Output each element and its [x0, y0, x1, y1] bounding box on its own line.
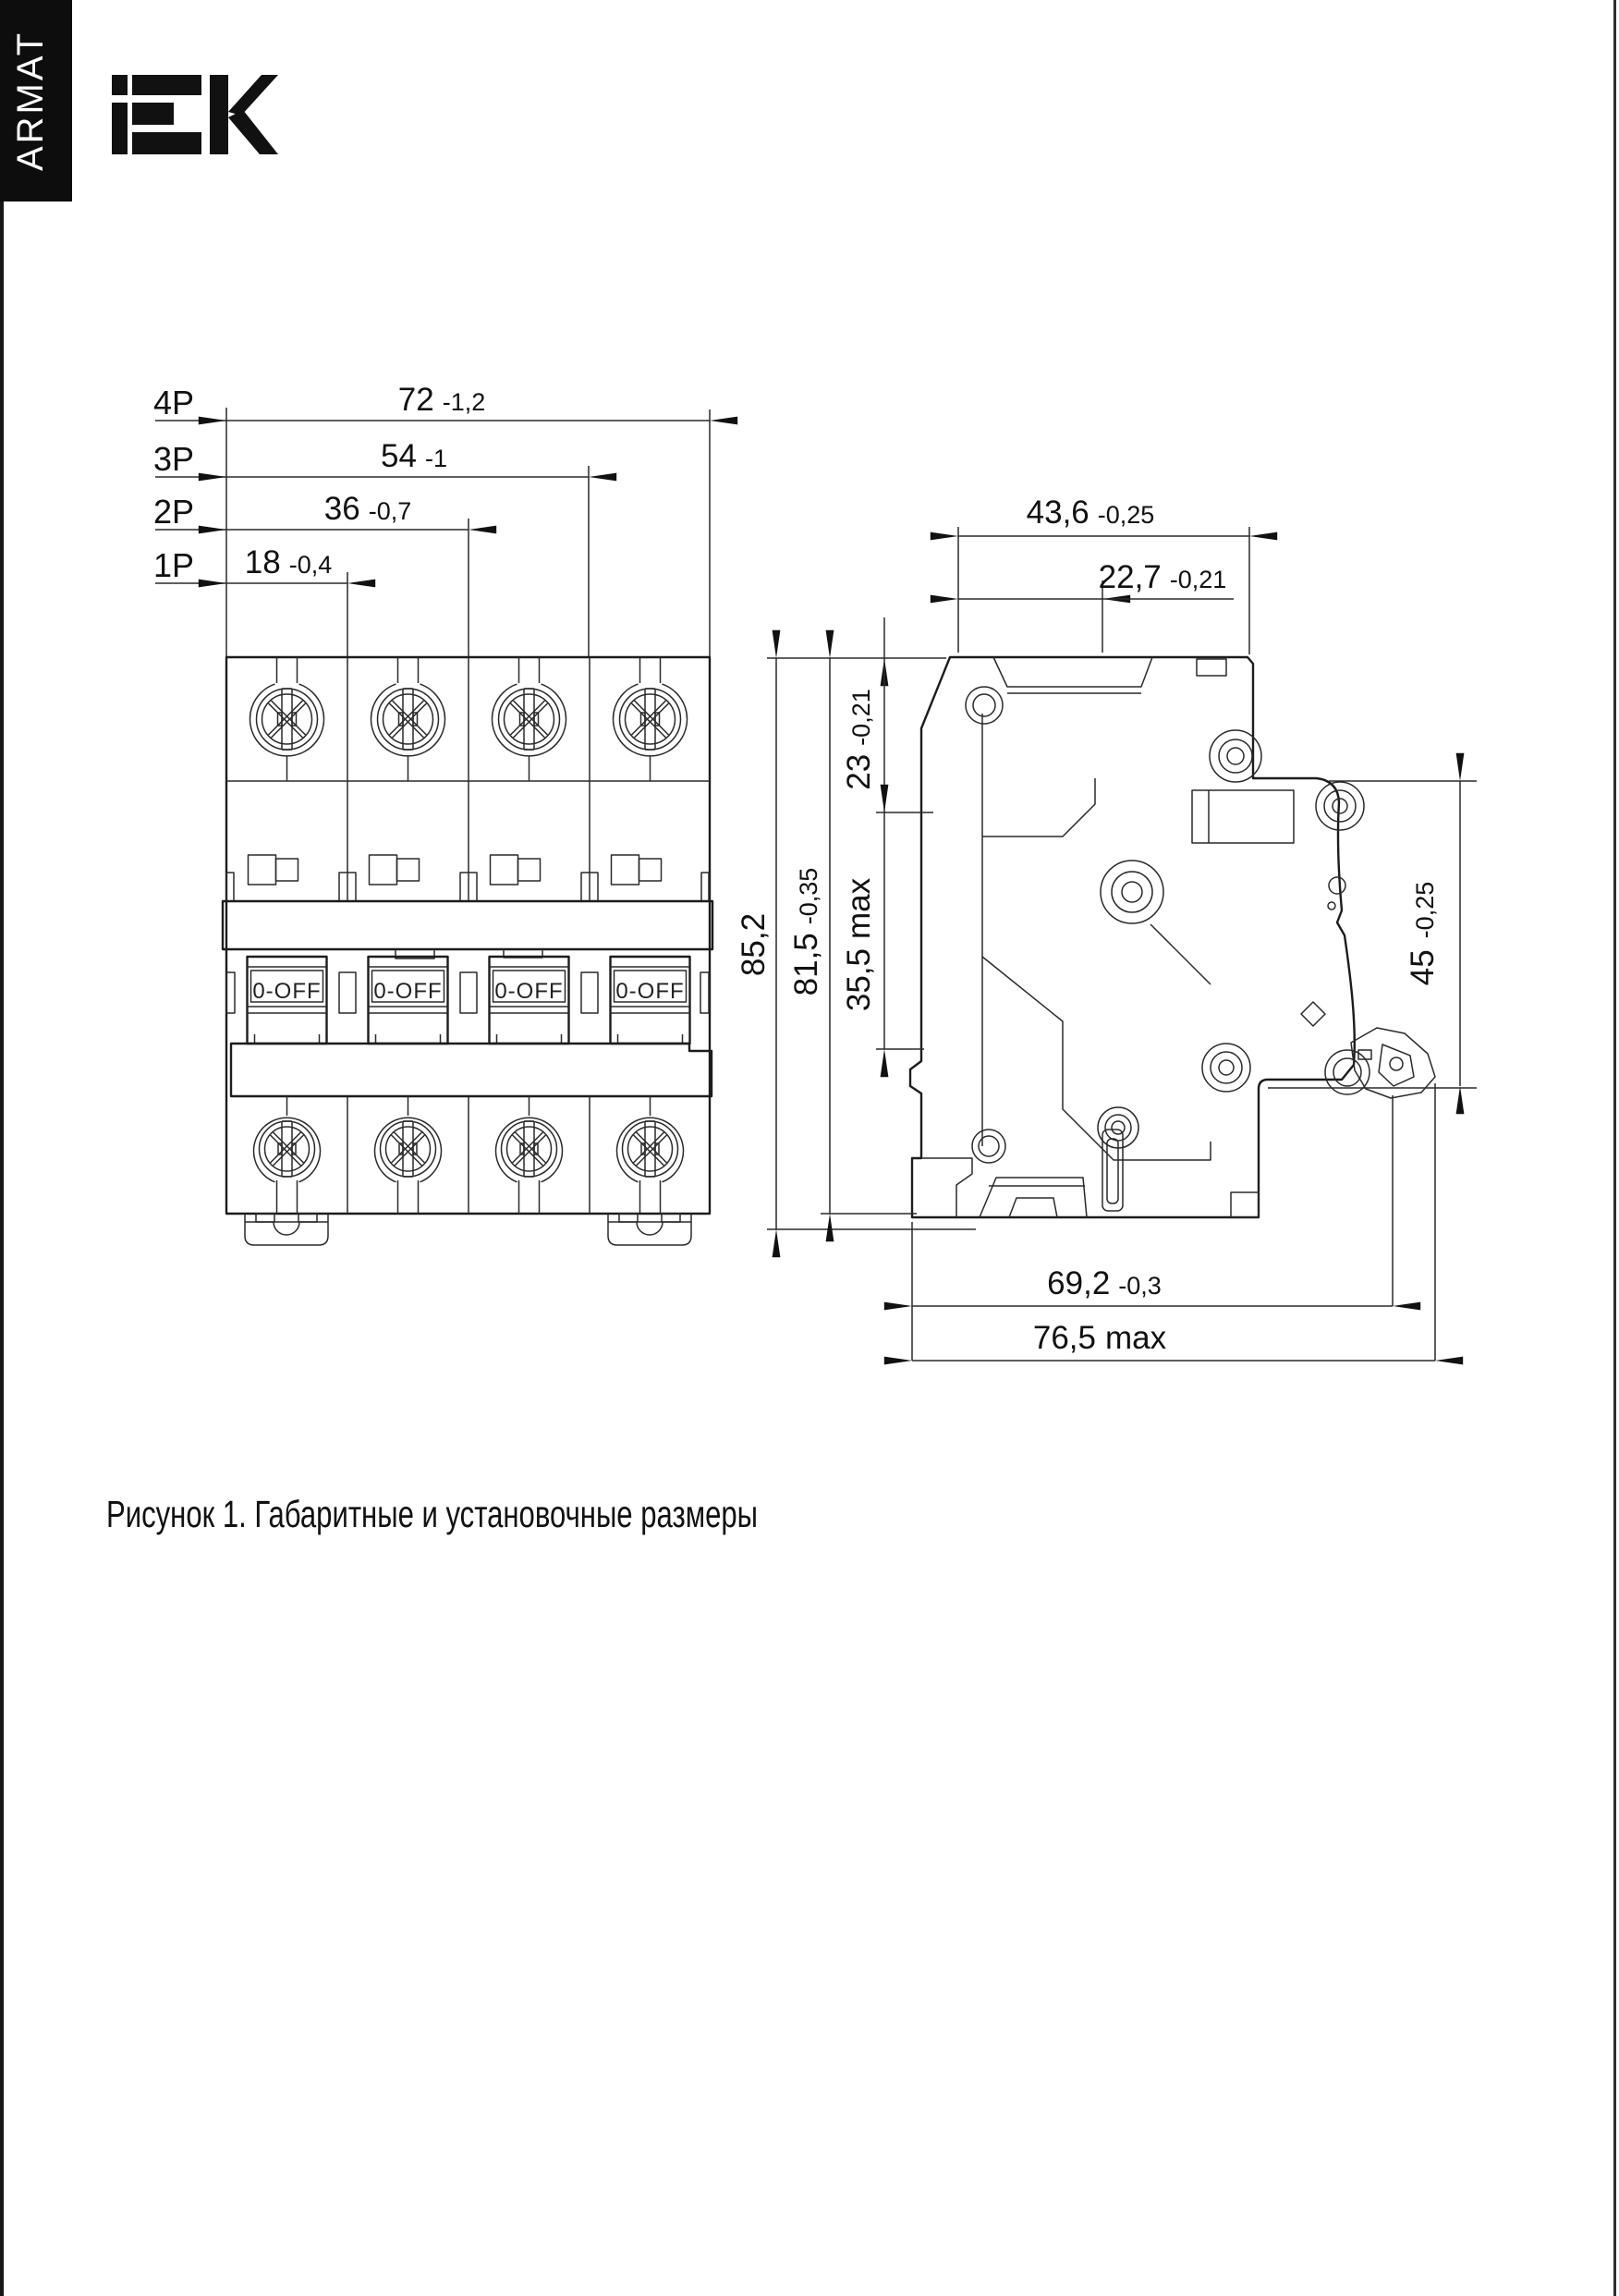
side-view-screws	[966, 687, 1369, 1163]
dim-mid-depth: 35,5max	[841, 877, 877, 1011]
page-right-border	[1613, 0, 1616, 2296]
dim-din-recess: 45-0,25	[1405, 882, 1441, 985]
handle-label-3: 0-OFF	[494, 979, 563, 1004]
handle-label-2: 0-OFF	[373, 979, 442, 1004]
dimensional-drawing: ARMAT 4P 3P 2P 1P 72-1,2 54-1	[0, 0, 1619, 2296]
dim-width-4p: 72-1,2	[398, 382, 485, 418]
dim-body-height: 81,5-0,35	[788, 868, 824, 996]
pole-label-2p: 2P	[153, 493, 194, 531]
dim-width-3p: 54-1	[381, 438, 447, 474]
side-dimensions: 43,6-0,25 22,7-0,21 85,2 81,5-0,35 35,5m…	[736, 495, 1477, 1361]
dim-width-1p: 18-0,4	[245, 544, 332, 580]
side-view-outline	[910, 657, 1355, 1217]
handle-label-4: 0-OFF	[615, 979, 684, 1004]
dim-total-height: 85,2	[736, 913, 772, 976]
pole-label-4p: 4P	[153, 384, 194, 421]
page-left-border	[0, 0, 4, 2296]
brand-sidebar: ARMAT	[0, 0, 72, 202]
handle-label-1: 0-OFF	[252, 979, 321, 1004]
pole-label-1p: 1P	[153, 546, 194, 584]
pole-label-3p: 3P	[153, 440, 194, 478]
front-dimensions: 4P 3P 2P 1P 72-1,2 54-1 36-0,7 18-0,4	[153, 382, 710, 657]
iek-logo	[112, 75, 278, 154]
front-view-body: 0-OFF 0-OFF 0-OFF 0-OFF	[223, 657, 712, 1245]
figure-caption: Рисунок 1. Габаритные и установочные раз…	[106, 1493, 758, 1535]
dim-top-width: 43,6-0,25	[1027, 495, 1155, 531]
dim-body-depth: 69,2-0,3	[1047, 1265, 1162, 1301]
dim-max-depth: 76,5max	[1033, 1320, 1167, 1356]
side-view: 43,6-0,25 22,7-0,21 85,2 81,5-0,35 35,5m…	[736, 495, 1477, 1361]
dim-terminal-width: 22,7-0,21	[1099, 559, 1227, 595]
sidebar-brand-text: ARMAT	[10, 31, 51, 171]
technical-drawing-page: ARMAT 4P 3P 2P 1P 72-1,2 54-1	[0, 0, 1619, 2296]
dim-terminal-depth: 23-0,21	[841, 689, 877, 789]
dim-width-2p: 36-0,7	[324, 491, 411, 527]
front-view: 4P 3P 2P 1P 72-1,2 54-1 36-0,7 18-0,4	[153, 382, 712, 1245]
